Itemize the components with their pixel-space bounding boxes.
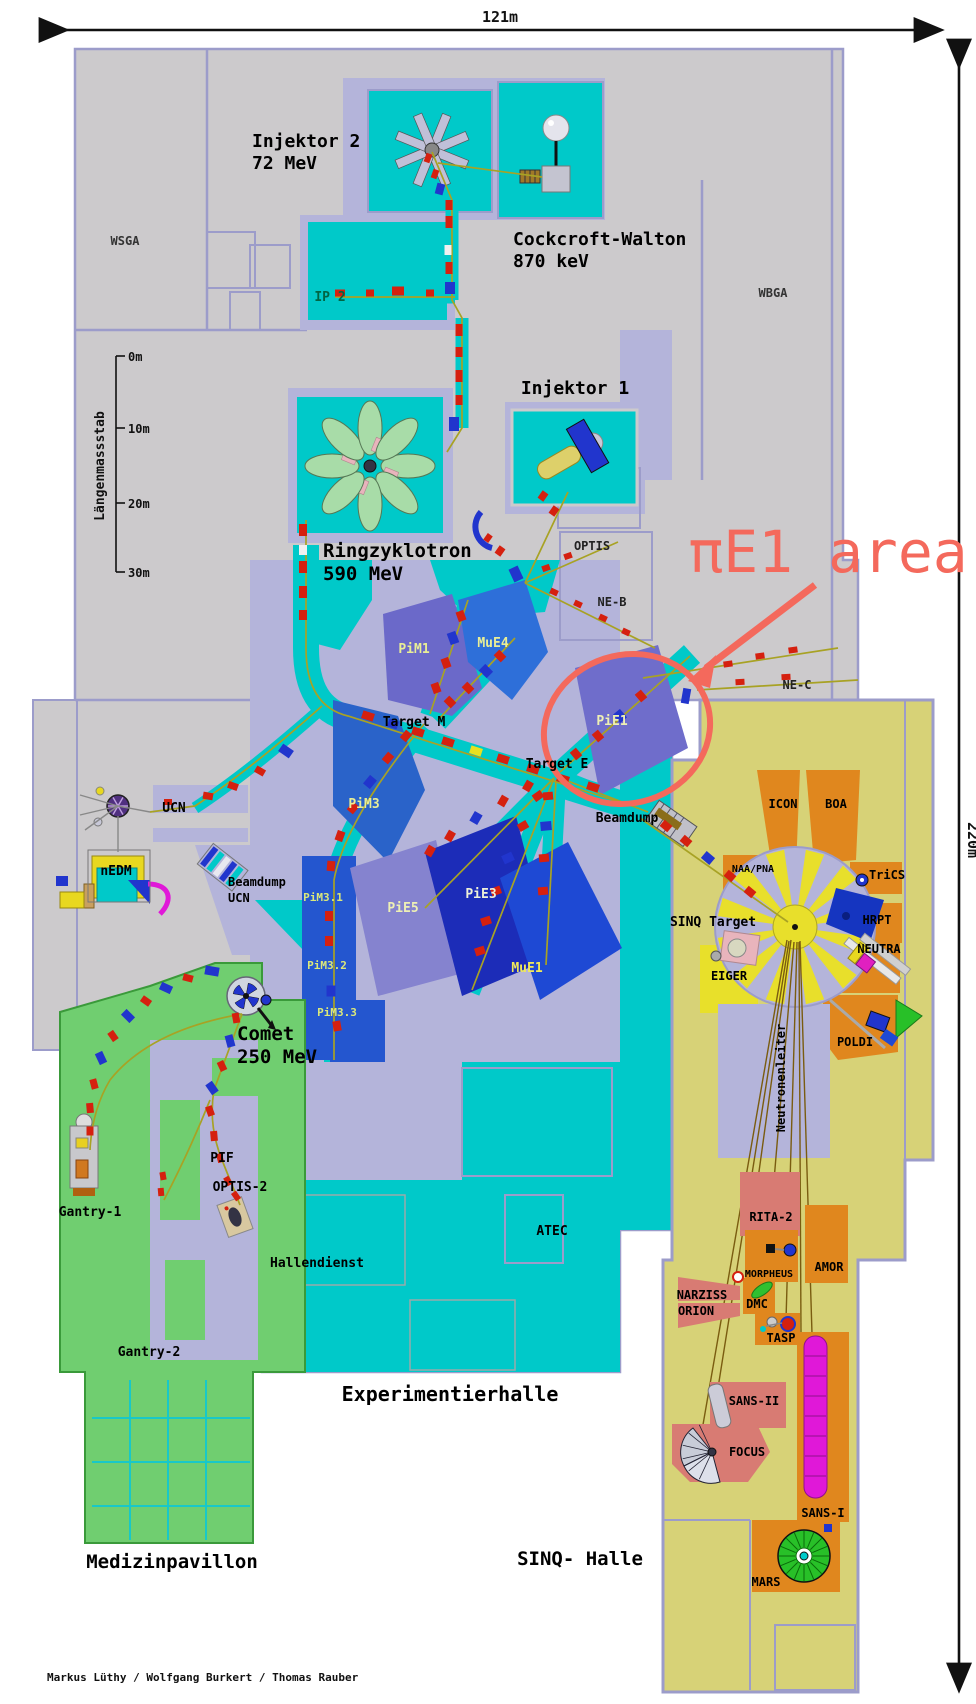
ne-c-label: NE-C [783, 678, 812, 692]
hrpt-label: HRPT [863, 913, 892, 927]
optis2-label: OPTIS-2 [213, 1180, 268, 1195]
ucn-label: UCN [162, 801, 186, 816]
nedm-label: nEDM [100, 864, 131, 879]
quadrupole-magnet-icon [456, 324, 463, 336]
comet-label: Comet [237, 1023, 294, 1045]
quadrupole-magnet-icon [87, 1127, 94, 1136]
sinq-target-center-dot [792, 924, 798, 930]
quadrupole-magnet-icon [299, 610, 307, 620]
eiger-detail [711, 951, 721, 961]
injektor2-label: Injektor 2 [252, 131, 360, 152]
psi-facility-map: 121m220mInjektor 272 MeVCockcroft-Walton… [0, 0, 976, 1704]
beamdump-ucn-label-2: UCN [228, 891, 250, 905]
rita2-label: RITA-2 [749, 1210, 792, 1224]
atec-label: ATEC [536, 1224, 567, 1239]
credit-line: Markus Lüthy / Wolfgang Burkert / Thomas… [47, 1671, 359, 1684]
quadrupole-magnet-icon [456, 347, 463, 357]
rita2-area [740, 1172, 800, 1236]
quadrupole-magnet-icon [332, 1020, 342, 1031]
pif-label: PIF [210, 1151, 234, 1166]
focus-label: FOCUS [729, 1445, 765, 1459]
no-entry-icon [733, 1272, 743, 1282]
ringzyklotron-icon [305, 401, 435, 531]
scalebar-tick-10m: 10m [128, 422, 150, 436]
mars-label: MARS [752, 1575, 781, 1589]
ne-b-label: NE-B [598, 595, 627, 609]
pim3-2-label: PiM3.2 [307, 959, 347, 972]
injektor2-energy-label: 72 MeV [252, 153, 317, 174]
neutra-label: NEUTRA [857, 942, 901, 956]
quadrupole-magnet-icon [456, 370, 463, 382]
morpheus-sample-icon [766, 1244, 775, 1253]
medizinpavillon-label: Medizinpavillon [86, 1551, 258, 1573]
wsga-label: WSGA [111, 234, 141, 248]
bending-magnet-icon [540, 821, 552, 831]
dmc-label: DMC [746, 1297, 768, 1311]
experimentierhalle-label: Experimentierhalle [342, 1382, 559, 1406]
quadrupole-magnet-icon [446, 262, 453, 274]
eiger-sample-table-icon [728, 939, 746, 957]
comet-energy-label: 250 MeV [237, 1046, 317, 1068]
tasp-detector-icon [781, 1317, 795, 1331]
scalebar-tick-0m: 0m [128, 350, 142, 364]
bending-magnet-icon [445, 282, 455, 294]
pie1-area-annotation-text: πE1 area [688, 518, 967, 586]
quadrupole-magnet-icon [723, 660, 733, 667]
poldi-label: POLDI [837, 1035, 873, 1049]
orion-label: ORION [678, 1304, 714, 1318]
beamdump-label: Beamdump [596, 811, 659, 826]
neutronenleiter-label: Neutronenleiter [774, 1024, 788, 1132]
pim1-label: PiM1 [398, 642, 429, 657]
quadrupole-magnet-icon [755, 652, 765, 659]
gantry2-label: Gantry-2 [118, 1345, 181, 1360]
tasp-label: TASP [767, 1331, 796, 1345]
quadrupole-magnet-icon [299, 524, 307, 536]
cockcroft-label: Cockcroft-Walton [513, 229, 686, 250]
pie1-label: PiE1 [596, 714, 627, 729]
sinq-target-label: SINQ Target [670, 915, 756, 930]
quadrupole-magnet-icon [158, 1188, 165, 1196]
ringzyklotron-label: Ringzyklotron [323, 540, 472, 562]
quadrupole-magnet-icon [456, 395, 463, 405]
quadrupole-magnet-icon [299, 561, 307, 573]
quadrupole-magnet-icon [366, 290, 374, 297]
quadrupole-magnet-icon [325, 911, 333, 921]
hrpt-detail [842, 912, 850, 920]
narziss-label: NARZISS [677, 1288, 728, 1302]
morpheus-label: MORPHEUS [745, 1269, 793, 1280]
target-e-label: Target E [526, 757, 589, 772]
height-dimension-label: 220m [964, 822, 976, 858]
bending-magnet-icon [327, 986, 336, 997]
eiger-label: EIGER [711, 969, 748, 983]
pie5-label: PiE5 [387, 901, 418, 916]
width-dimension-label: 121m [482, 8, 518, 26]
amor-label: AMOR [815, 1260, 845, 1274]
gantry1-label: Gantry-1 [59, 1205, 122, 1220]
morpheus-arm [775, 1249, 784, 1250]
quadrupole-magnet-icon [538, 887, 549, 896]
scalebar-tick-30m: 30m [128, 566, 150, 580]
naapna-label: NAA/PNA [732, 864, 774, 875]
injektor1-label: Injektor 1 [521, 378, 629, 399]
quadrupole-magnet-icon [299, 586, 307, 598]
hallendienst-label: Hallendienst [270, 1256, 364, 1271]
mue1-label: MuE1 [511, 961, 542, 976]
quadrupole-magnet-icon [210, 1131, 218, 1142]
gantry1-instrument-icon [70, 1114, 98, 1196]
boa-label: BOA [825, 797, 847, 811]
quadrupole-magnet-icon [325, 936, 333, 946]
scalebar-title: Längenmassstab [93, 411, 108, 521]
target-m-label: Target M [383, 715, 446, 730]
quadrupole-magnet-icon [539, 854, 550, 863]
pim3-label: PiM3 [348, 797, 379, 812]
cockcroft-energy-label: 870 keV [513, 251, 589, 272]
bending-magnet-icon [449, 417, 459, 431]
quadrupole-magnet-icon [446, 216, 453, 228]
sans1-detector-icon [804, 1336, 827, 1498]
sinq-halle-label: SINQ- Halle [517, 1548, 643, 1570]
quadrupole-magnet-icon [543, 792, 554, 801]
quadrupole-magnet-icon [735, 679, 744, 685]
sinq-hall [663, 700, 933, 1692]
quadrupole-magnet-icon [392, 287, 404, 296]
sans1-label: SANS-I [801, 1506, 844, 1520]
morpheus-detector-icon [784, 1244, 796, 1256]
ip2-label: IP 2 [314, 290, 345, 305]
facility-map-svg: 121m220mInjektor 272 MeVCockcroft-Walton… [0, 0, 976, 1704]
wbga-label: WBGA [759, 286, 789, 300]
ringzyklotron-energy-label: 590 MeV [323, 563, 403, 585]
sans2-label: SANS-II [729, 1394, 780, 1408]
trics-label: TriCS [869, 868, 905, 882]
quadrupole-magnet-icon [426, 290, 434, 297]
optis-label: OPTIS [574, 539, 610, 553]
pim3-1-label: PiM3.1 [303, 891, 343, 904]
pie3-label: PiE3 [465, 887, 496, 902]
trics-detail [860, 878, 864, 882]
quadrupole-magnet-icon [445, 245, 452, 255]
quadrupole-magnet-icon [327, 861, 336, 872]
beamdump-ucn-label-1: Beamdump [228, 875, 286, 889]
quadrupole-magnet-icon [299, 545, 307, 555]
quadrupole-magnet-icon [86, 1103, 94, 1114]
scalebar-tick-20m: 20m [128, 497, 150, 511]
tasp-sample-icon [760, 1326, 766, 1332]
mue4-label: MuE4 [477, 636, 508, 651]
icon-label: ICON [769, 797, 798, 811]
pim3-3-label: PiM3.3 [317, 1006, 357, 1019]
quadrupole-magnet-icon [446, 200, 453, 210]
quadrupole-magnet-icon [788, 646, 798, 653]
